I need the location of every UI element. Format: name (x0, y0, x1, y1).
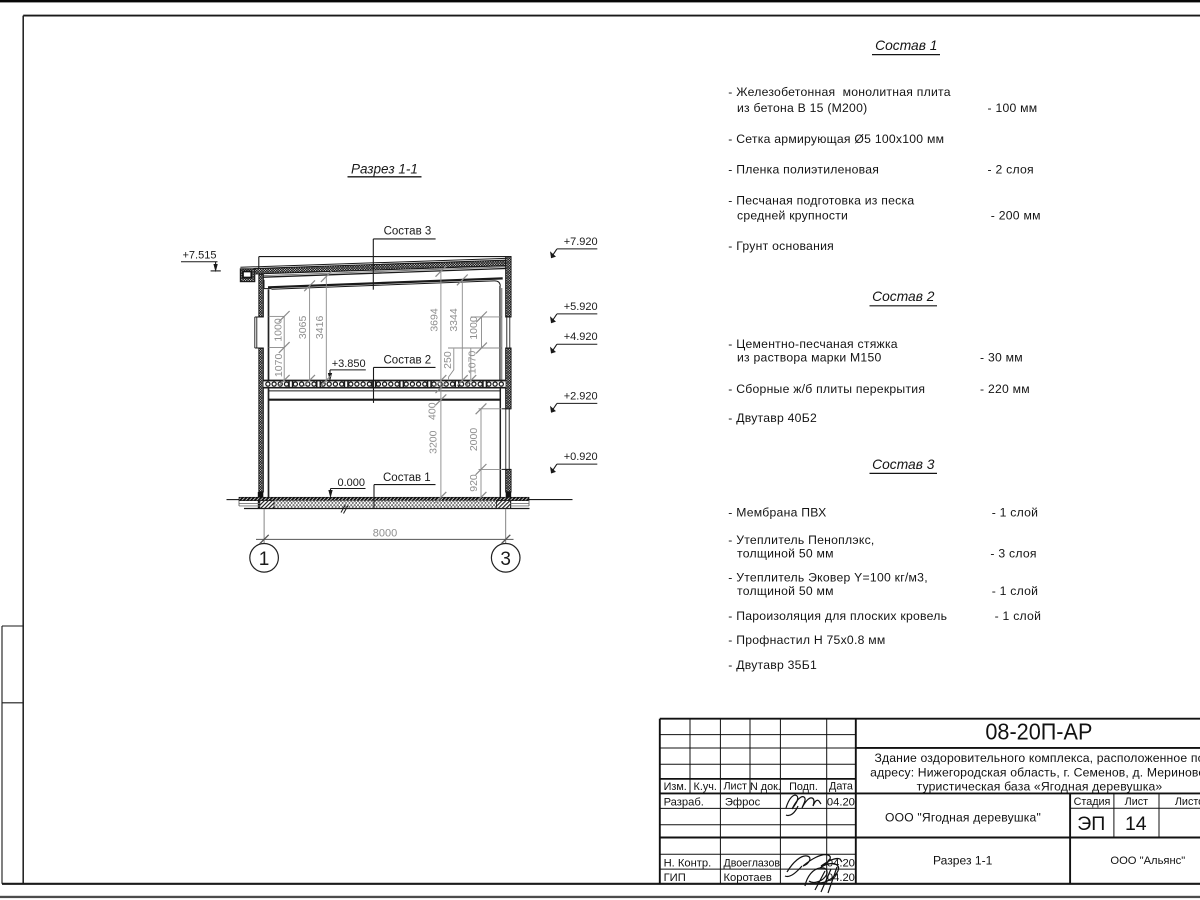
svg-text:400: 400 (427, 402, 439, 420)
svg-text:Лист: Лист (723, 781, 747, 793)
svg-text:ЭП: ЭП (1077, 813, 1105, 835)
svg-text:Состав 2: Состав 2 (384, 355, 432, 367)
svg-text:0.000: 0.000 (338, 477, 366, 489)
svg-text:+0.920: +0.920 (564, 451, 598, 463)
svg-text:толщиной 50 мм: толщиной 50 мм (737, 584, 834, 598)
svg-text:3416: 3416 (314, 316, 326, 340)
svg-text:Состав 3: Состав 3 (872, 457, 935, 472)
svg-text:- Сетка армирующая Ø5 100х100: - Сетка армирующая Ø5 100х100 мм (728, 132, 944, 146)
svg-text:- Сборные ж/б плиты перекрытия: - Сборные ж/б плиты перекрытия (728, 382, 925, 396)
svg-text:Двоеглазов: Двоеглазов (724, 857, 781, 869)
svg-text:ООО "Ягодная деревушка": ООО "Ягодная деревушка" (885, 810, 1041, 824)
svg-text:- Песчаная подготовка из песка: - Песчаная подготовка из песка (728, 193, 914, 207)
svg-text:туристическая база «Ягодная де: туристическая база «Ягодная деревушка» (917, 780, 1163, 794)
svg-text:Дата: Дата (829, 781, 853, 793)
svg-text:Разрез 1-1: Разрез 1-1 (933, 854, 993, 868)
svg-text:Эфрос: Эфрос (725, 796, 761, 808)
svg-text:- Мембрана ПВХ: - Мембрана ПВХ (728, 505, 826, 519)
svg-text:толщиной 50 мм: толщиной 50 мм (737, 546, 834, 560)
svg-text:Разрез 1-1: Разрез 1-1 (351, 162, 418, 177)
svg-text:адресу: Нижегородская область,: адресу: Нижегородская область, г. Семено… (870, 765, 1200, 779)
svg-text:Коротаев: Коротаев (724, 872, 772, 884)
svg-text:08-20П-АР: 08-20П-АР (985, 718, 1092, 744)
svg-text:3: 3 (500, 549, 511, 570)
svg-text:Подп.: Подп. (789, 781, 818, 793)
svg-text:+7.920: +7.920 (564, 236, 598, 248)
svg-text:250: 250 (442, 351, 454, 369)
svg-text:- 200 мм: - 200 мм (991, 208, 1041, 222)
svg-text:Листов: Листов (1175, 796, 1200, 808)
svg-text:Лист: Лист (1125, 796, 1149, 808)
svg-text:- Двутавр 35Б1: - Двутавр 35Б1 (728, 658, 817, 672)
svg-text:ООО "Альянс": ООО "Альянс" (1110, 855, 1185, 867)
svg-text:+4.920: +4.920 (564, 331, 598, 343)
svg-text:средней крупности: средней крупности (737, 208, 848, 222)
svg-text:04.20: 04.20 (827, 797, 855, 809)
svg-text:1: 1 (259, 549, 270, 570)
svg-text:+3.850: +3.850 (332, 358, 366, 370)
svg-text:К.уч.: К.уч. (694, 781, 717, 793)
svg-text:+7.515: +7.515 (183, 250, 217, 262)
svg-text:Н. Контр.: Н. Контр. (664, 857, 712, 869)
svg-text:- 220 мм: - 220 мм (980, 382, 1030, 396)
svg-text:- Утеплитель Эковер Y=100 кг/м: - Утеплитель Эковер Y=100 кг/м3, (728, 570, 928, 584)
svg-text:8000: 8000 (373, 528, 397, 540)
svg-text:из бетона В 15 (М200): из бетона В 15 (М200) (737, 101, 867, 115)
svg-text:14: 14 (1125, 813, 1147, 835)
svg-text:Изм.: Изм. (664, 781, 687, 793)
svg-text:- Профнастил Н 75х0.8 мм: - Профнастил Н 75х0.8 мм (728, 633, 885, 647)
svg-text:Здание оздоровительного компле: Здание оздоровительного комплекса, распо… (874, 751, 1200, 765)
svg-text:1000: 1000 (468, 316, 480, 340)
svg-text:- 100 мм: - 100 мм (988, 101, 1038, 115)
svg-text:2000: 2000 (468, 428, 480, 452)
svg-text:3344: 3344 (448, 308, 460, 332)
svg-text:- Утеплитель Пеноплэкс,: - Утеплитель Пеноплэкс, (728, 533, 874, 547)
svg-text:- Цементно-песчаная стяжка: - Цементно-песчаная стяжка (728, 337, 898, 351)
svg-text:1070: 1070 (273, 354, 285, 378)
svg-text:Стадия: Стадия (1074, 796, 1111, 808)
svg-text:Состав 1: Состав 1 (875, 38, 937, 53)
svg-text:N док.: N док. (750, 781, 781, 793)
svg-text:- Пленка полиэтиленовая: - Пленка полиэтиленовая (728, 163, 879, 177)
svg-text:Состав 3: Состав 3 (384, 226, 432, 238)
svg-text:- 2 слоя: - 2 слоя (988, 163, 1034, 177)
svg-text:3694: 3694 (429, 308, 441, 332)
svg-text:ГИП: ГИП (664, 872, 686, 884)
svg-text:- Пароизоляция для плоских кро: - Пароизоляция для плоских кровель (728, 609, 947, 623)
svg-text:- 1 слой: - 1 слой (995, 609, 1042, 623)
svg-text:- Грунт основания: - Грунт основания (728, 239, 834, 253)
svg-text:3200: 3200 (427, 430, 439, 454)
svg-text:Разраб.: Разраб. (664, 796, 704, 808)
svg-text:920: 920 (468, 474, 480, 492)
svg-text:Состав 1: Состав 1 (383, 472, 431, 484)
svg-text:1070: 1070 (466, 351, 478, 375)
svg-text:+5.920: +5.920 (564, 301, 598, 313)
svg-text:Состав 2: Состав 2 (872, 289, 935, 304)
svg-text:- 3 слоя: - 3 слоя (990, 546, 1036, 560)
svg-text:- Железобетонная монолитная п: - Железобетонная монолитная плита (728, 85, 950, 99)
svg-text:- 1 слой: - 1 слой (992, 584, 1039, 598)
svg-text:- Двутавр 40Б2: - Двутавр 40Б2 (728, 411, 817, 425)
svg-text:- 1 слой: - 1 слой (992, 505, 1039, 519)
svg-text:из раствора марки М150: из раствора марки М150 (737, 351, 882, 365)
svg-text:1000: 1000 (273, 318, 285, 342)
svg-text:+2.920: +2.920 (564, 390, 598, 402)
svg-text:3065: 3065 (297, 316, 309, 340)
svg-text:- 30 мм: - 30 мм (980, 351, 1023, 365)
